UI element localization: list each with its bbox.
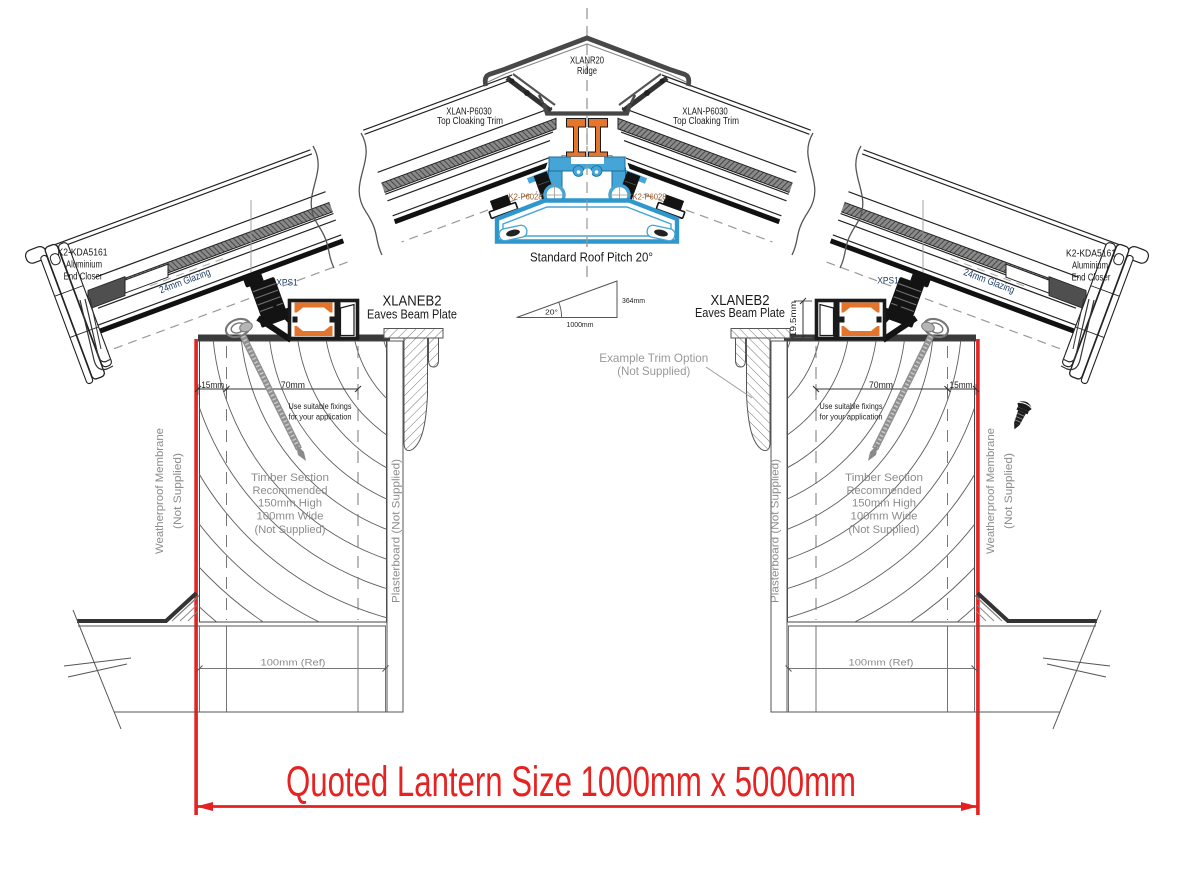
svg-text:(Not Supplied): (Not Supplied) bbox=[617, 364, 690, 378]
svg-text:70mm: 70mm bbox=[869, 380, 893, 390]
svg-text:Timber Section: Timber Section bbox=[845, 472, 923, 484]
svg-text:Plasterboard (Not Supplied): Plasterboard (Not Supplied) bbox=[770, 459, 782, 603]
svg-text:K2-P6028: K2-P6028 bbox=[633, 192, 667, 202]
svg-text:Use suitable fixings: Use suitable fixings bbox=[289, 402, 352, 411]
svg-text:Weatherproof Membrane: Weatherproof Membrane bbox=[985, 428, 997, 554]
svg-text:XPS1: XPS1 bbox=[877, 276, 899, 287]
svg-text:Top Cloaking Trim: Top Cloaking Trim bbox=[673, 116, 739, 127]
svg-text:XPS1: XPS1 bbox=[276, 278, 298, 289]
svg-text:Eaves Beam Plate: Eaves Beam Plate bbox=[367, 308, 457, 322]
svg-text:Aluminium: Aluminium bbox=[66, 260, 102, 271]
svg-text:Timber Section: Timber Section bbox=[251, 472, 329, 484]
svg-text:1000mm: 1000mm bbox=[567, 320, 594, 329]
svg-text:150mm High: 150mm High bbox=[852, 498, 916, 510]
svg-text:364mm: 364mm bbox=[622, 296, 645, 305]
svg-text:150mm High: 150mm High bbox=[258, 498, 322, 510]
svg-text:15mm: 15mm bbox=[201, 380, 224, 390]
svg-text:K2-KDA5161: K2-KDA5161 bbox=[1066, 249, 1116, 260]
svg-text:for your application: for your application bbox=[289, 413, 352, 422]
svg-text:Example Trim Option: Example Trim Option bbox=[599, 351, 708, 365]
svg-text:Top Cloaking Trim: Top Cloaking Trim bbox=[437, 116, 503, 127]
svg-text:Use suitable fixings: Use suitable fixings bbox=[820, 402, 883, 411]
svg-text:Weatherproof Membrane: Weatherproof Membrane bbox=[154, 428, 166, 554]
svg-text:19.5mm: 19.5mm bbox=[789, 301, 798, 337]
svg-text:Standard Roof Pitch 20°: Standard Roof Pitch 20° bbox=[530, 250, 653, 265]
svg-text:Aluminium: Aluminium bbox=[1072, 261, 1108, 272]
svg-text:Eaves Beam Plate: Eaves Beam Plate bbox=[695, 306, 785, 320]
svg-text:(Not Supplied): (Not Supplied) bbox=[1003, 453, 1015, 529]
svg-text:Recommended: Recommended bbox=[253, 485, 328, 497]
svg-text:Ridge: Ridge bbox=[577, 66, 597, 77]
svg-text:100mm (Ref): 100mm (Ref) bbox=[849, 658, 914, 668]
svg-text:100mm (Ref): 100mm (Ref) bbox=[261, 658, 326, 668]
svg-text:Plasterboard (Not Supplied): Plasterboard (Not Supplied) bbox=[391, 459, 403, 603]
svg-text:Quoted Lantern Size 1000mm x 5: Quoted Lantern Size 1000mm x 5000mm bbox=[286, 759, 856, 806]
svg-text:100mm Wide: 100mm Wide bbox=[851, 510, 918, 522]
svg-text:XLANR20: XLANR20 bbox=[570, 56, 604, 67]
svg-text:20°: 20° bbox=[545, 308, 558, 317]
svg-text:Recommended: Recommended bbox=[847, 485, 922, 497]
svg-text:(Not Supplied): (Not Supplied) bbox=[172, 453, 184, 529]
svg-text:End Closer: End Closer bbox=[1072, 273, 1112, 284]
svg-text:K2-KDA5161: K2-KDA5161 bbox=[58, 248, 108, 259]
svg-text:for your application: for your application bbox=[820, 413, 883, 422]
svg-text:(Not Supplied): (Not Supplied) bbox=[849, 524, 920, 536]
svg-text:K2-P6028: K2-P6028 bbox=[509, 192, 543, 202]
svg-text:(Not Supplied): (Not Supplied) bbox=[255, 524, 326, 536]
svg-text:70mm: 70mm bbox=[281, 380, 305, 390]
svg-text:100mm Wide: 100mm Wide bbox=[257, 510, 324, 522]
svg-text:End Closer: End Closer bbox=[64, 272, 104, 283]
svg-text:15mm: 15mm bbox=[950, 380, 973, 390]
